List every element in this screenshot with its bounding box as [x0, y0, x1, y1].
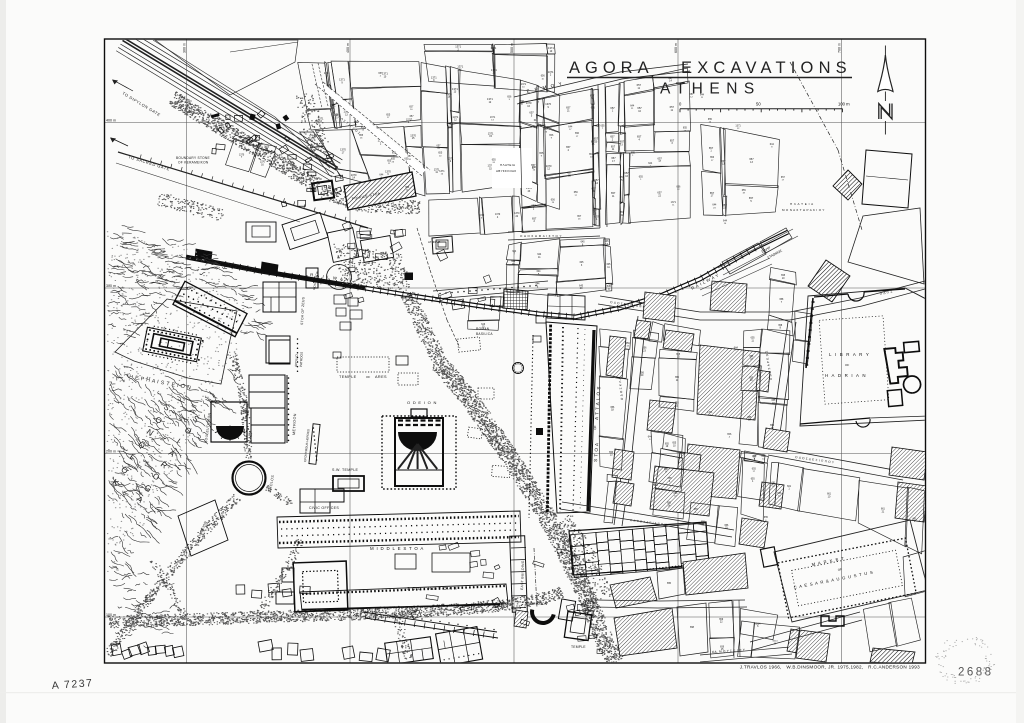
svg-text:655: 655 — [777, 492, 782, 495]
svg-text:50: 50 — [756, 102, 761, 107]
svg-text:S O U T H S T O A II: S O U T H S T O A II — [407, 586, 457, 591]
svg-text:644: 644 — [648, 162, 653, 165]
svg-text:1371: 1371 — [490, 116, 496, 119]
svg-text:656: 656 — [541, 75, 546, 78]
svg-text:655: 655 — [601, 124, 606, 127]
svg-text:ΑΒΥΣΣΙΝΙΑΣ: ΑΒΥΣΣΙΝΙΑΣ — [496, 169, 516, 173]
svg-text:656: 656 — [575, 132, 580, 135]
svg-text:644: 644 — [712, 204, 717, 207]
svg-text:AΓ. ΦIΛIΠ: AΓ. ΦIΛIΠ — [428, 240, 440, 244]
svg-text:655: 655 — [764, 516, 769, 519]
svg-text:656: 656 — [405, 186, 410, 189]
svg-text:656: 656 — [591, 106, 596, 109]
svg-text:655: 655 — [359, 134, 364, 137]
svg-text:O Δ O Σ H Φ A I Σ T O Y: O Δ O Σ H Φ A I Σ T O Y — [520, 234, 562, 238]
svg-text:657: 657 — [410, 115, 415, 118]
svg-text:300 m: 300 m — [182, 43, 186, 53]
svg-text:655: 655 — [694, 508, 699, 511]
svg-text:657: 657 — [408, 155, 413, 158]
svg-text:657: 657 — [409, 106, 414, 109]
svg-text:644: 644 — [762, 455, 767, 458]
svg-text:656: 656 — [536, 98, 541, 101]
svg-text:657: 657 — [361, 126, 366, 129]
svg-text:655: 655 — [752, 468, 757, 471]
svg-text:100 m: 100 m — [838, 102, 850, 107]
svg-text:200 m: 200 m — [106, 449, 116, 453]
svg-text:644: 644 — [534, 119, 539, 122]
svg-text:657: 657 — [577, 215, 582, 218]
svg-text:BASILICA: BASILICA — [476, 332, 493, 336]
svg-text:M I D D L E S T O A: M I D D L E S T O A — [370, 546, 424, 551]
svg-text:656: 656 — [574, 191, 579, 194]
svg-text:600 m: 600 m — [674, 43, 678, 53]
svg-text:658: 658 — [690, 626, 695, 629]
svg-text:400 m: 400 m — [106, 118, 116, 122]
svg-text:656: 656 — [549, 134, 554, 137]
svg-text:PATROOS: PATROOS — [299, 352, 304, 367]
svg-text:655: 655 — [708, 118, 713, 121]
svg-text:656: 656 — [727, 433, 732, 436]
svg-text:655: 655 — [683, 127, 688, 130]
svg-text:S.W. TEMPLE: S.W. TEMPLE — [332, 468, 359, 472]
svg-text:657: 657 — [589, 153, 594, 156]
svg-text:ΠΛΑΤΕΙΑ: ΠΛΑΤΕΙΑ — [500, 163, 515, 167]
svg-text:644: 644 — [379, 173, 384, 176]
svg-text:655: 655 — [639, 175, 644, 178]
svg-text:644: 644 — [630, 104, 635, 107]
svg-text:M O N A Σ T H P A K I O Y: M O N A Σ T H P A K I O Y — [782, 208, 825, 212]
svg-text:655: 655 — [667, 582, 672, 585]
svg-text:655: 655 — [438, 152, 443, 155]
svg-text:1371: 1371 — [707, 411, 713, 414]
svg-text:655: 655 — [492, 158, 497, 161]
svg-text:656: 656 — [626, 342, 631, 345]
svg-text:657: 657 — [787, 352, 792, 355]
svg-text:644: 644 — [770, 143, 775, 146]
svg-text:ATHENS: ATHENS — [660, 81, 761, 98]
svg-text:657: 657 — [437, 145, 442, 148]
svg-text:OF: OF — [845, 363, 849, 367]
svg-text:657: 657 — [781, 176, 786, 179]
svg-text:655: 655 — [742, 189, 747, 192]
svg-text:655: 655 — [354, 121, 359, 124]
svg-text:L I B R A R Y: L I B R A R Y — [829, 352, 870, 357]
svg-text:Π Λ A T E I A: Π Λ A T E I A — [790, 202, 814, 206]
svg-text:644: 644 — [700, 93, 705, 96]
svg-text:700 m: 700 m — [837, 43, 841, 53]
svg-text:APOLLO: APOLLO — [294, 354, 299, 367]
svg-text:1371: 1371 — [439, 170, 445, 173]
svg-text:TEMPLE: TEMPLE — [571, 645, 586, 649]
svg-text:655: 655 — [387, 159, 392, 162]
svg-text:655: 655 — [631, 151, 636, 154]
svg-text:OF KERAMEIKON: OF KERAMEIKON — [178, 161, 209, 165]
svg-text:655: 655 — [532, 166, 537, 169]
svg-text:J.TRAVLOS 1966, W.B.DINSMOOR: J.TRAVLOS 1966, W.B.DINSMOOR, JR. 1975,1… — [740, 665, 920, 670]
svg-text:657: 657 — [690, 93, 695, 96]
svg-text:655: 655 — [391, 158, 396, 161]
svg-text:656: 656 — [520, 100, 525, 103]
svg-text:656: 656 — [710, 156, 715, 159]
svg-text:H A D R I A N: H A D R I A N — [825, 373, 867, 378]
svg-text:656: 656 — [507, 95, 512, 98]
svg-text:644: 644 — [734, 346, 739, 349]
svg-text:CIVIC OFFICES: CIVIC OFFICES — [309, 506, 339, 510]
svg-text:656: 656 — [654, 484, 659, 487]
svg-text:644: 644 — [568, 125, 573, 128]
svg-text:1371: 1371 — [521, 83, 527, 86]
svg-text:300 m: 300 m — [106, 284, 116, 288]
svg-text:TEMPLE: TEMPLE — [339, 375, 357, 379]
svg-text:NYMPHAION: NYMPHAION — [525, 602, 548, 606]
svg-text:OF: OF — [366, 375, 370, 379]
svg-text:OF: OF — [593, 425, 597, 430]
svg-text:656: 656 — [676, 186, 681, 189]
svg-text:655: 655 — [323, 151, 328, 154]
svg-text:O D E I O N: O D E I O N — [407, 400, 437, 405]
svg-text:655: 655 — [392, 152, 397, 155]
svg-text:657: 657 — [378, 72, 383, 75]
svg-text:1371: 1371 — [735, 124, 741, 127]
svg-text:657: 657 — [319, 135, 324, 138]
svg-text:ARES: ARES — [375, 375, 387, 379]
svg-text:657: 657 — [544, 128, 549, 131]
svg-text:400 m: 400 m — [346, 43, 350, 53]
svg-text:644: 644 — [723, 220, 728, 223]
svg-text:656: 656 — [551, 198, 556, 201]
svg-text:BOUNDARY STONE: BOUNDARY STONE — [176, 156, 210, 160]
svg-text:1371: 1371 — [671, 201, 677, 204]
svg-text:EXCAVATIONS: EXCAVATIONS — [681, 59, 852, 77]
svg-text:644: 644 — [648, 436, 653, 439]
svg-text:656: 656 — [674, 492, 679, 495]
svg-text:655: 655 — [539, 152, 544, 155]
svg-text:655: 655 — [386, 114, 391, 117]
